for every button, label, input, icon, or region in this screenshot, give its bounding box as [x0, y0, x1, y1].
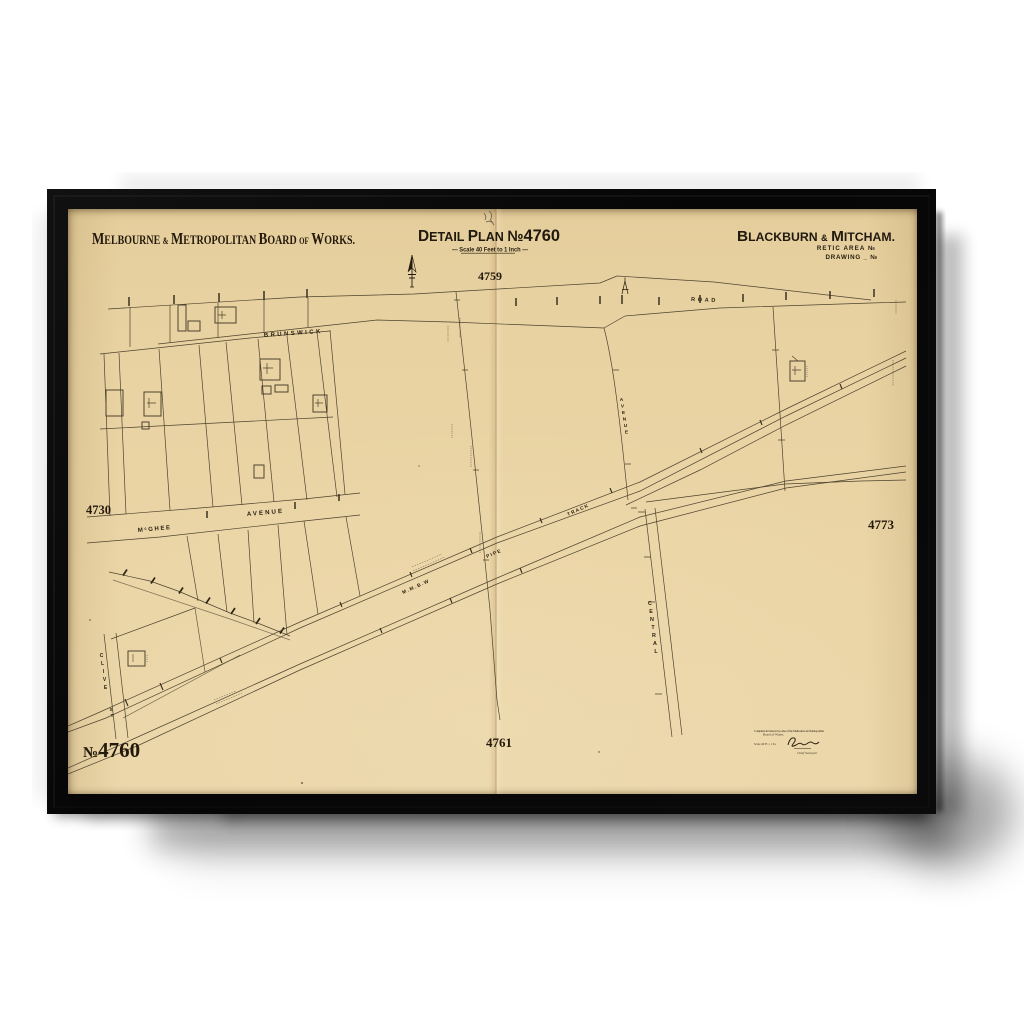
svg-text:— Scale 40 Feet to 1 Inch —: — Scale 40 Feet to 1 Inch — [452, 247, 528, 254]
svg-text:E: E [625, 430, 629, 436]
svg-text:E: E [104, 685, 108, 691]
svg-text:Chief Surveyor: Chief Surveyor [797, 751, 818, 755]
svg-text:PIPE: PIPE [485, 548, 503, 560]
svg-text:DETAIL PLAN №4760: DETAIL PLAN №4760 [418, 226, 560, 245]
svg-text:A: A [620, 397, 624, 403]
svg-text:MELBOURNE & METROPOLITAN BOARD: MELBOURNE & METROPOLITAN BOARD OF WORKS. [92, 229, 355, 248]
svg-text:U: U [624, 423, 628, 429]
svg-text:S: S [109, 707, 112, 712]
svg-text:ROAD: ROAD [691, 297, 718, 304]
svg-text:L: L [101, 661, 104, 667]
svg-text:C: C [100, 653, 104, 659]
svg-text:4761: 4761 [486, 735, 512, 750]
svg-text:Board of Works.: Board of Works. [763, 733, 784, 737]
svg-text:L: L [654, 649, 658, 655]
svg-text:AVENUE: AVENUE [247, 508, 285, 518]
svg-text:I: I [103, 669, 105, 675]
svg-text:V: V [103, 677, 107, 683]
svg-text:A: A [653, 641, 657, 647]
svg-text:M.M.B.W: M.M.B.W [401, 578, 431, 596]
svg-text:N: N [650, 617, 654, 623]
svg-text:4730: 4730 [86, 503, 111, 517]
svg-text:BLACKBURN & MITCHAM.: BLACKBURN & MITCHAM. [737, 228, 895, 245]
svg-text:V: V [621, 404, 625, 410]
svg-text:№4760: №4760 [83, 738, 140, 762]
svg-text:T: T [111, 713, 114, 718]
svg-text:R: R [652, 633, 656, 639]
svg-text:C: C [648, 601, 652, 607]
svg-text:4759: 4759 [478, 269, 502, 283]
svg-text:T: T [651, 625, 655, 631]
svg-text:Scale 40 Ft = 1 In: Scale 40 Ft = 1 In [754, 742, 776, 746]
svg-text:M⁣ᶜGHEE: M⁣ᶜGHEE [138, 525, 172, 534]
svg-text:RETIC AREA №: RETIC AREA № [817, 245, 876, 252]
svg-text:E: E [649, 609, 653, 615]
svg-text:DRAWING _ №: DRAWING _ № [826, 254, 878, 261]
svg-text:4773: 4773 [868, 517, 895, 532]
svg-text:N: N [623, 417, 627, 423]
svg-text:BRUNSWICK: BRUNSWICK [264, 329, 323, 339]
svg-text:E: E [622, 410, 626, 416]
